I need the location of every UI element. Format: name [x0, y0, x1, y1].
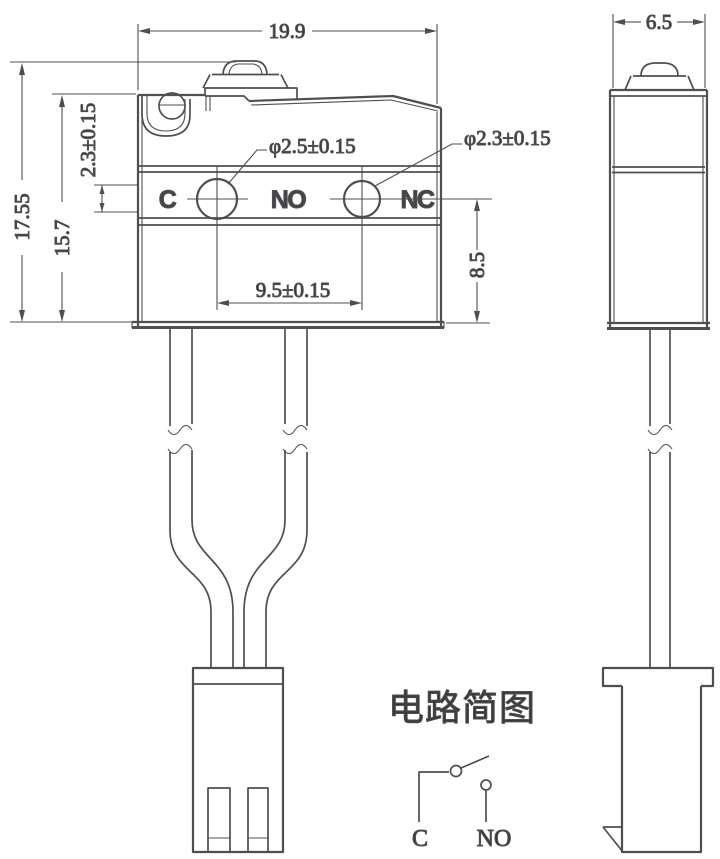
circuit-contact-no: [481, 780, 491, 790]
leader-text-hole2: φ2.3±0.15: [464, 126, 551, 150]
arrowhead: [350, 300, 362, 306]
side-body-outline: [607, 90, 710, 329]
side-wire: [648, 329, 672, 668]
connector-slot-1: [208, 788, 230, 852]
connector-slot-2: [248, 788, 268, 852]
dim-overall-height: 17.55: [10, 62, 236, 322]
dim-text-overall-height: 17.55: [10, 193, 34, 240]
dim-hole-spacing: 9.5±0.15: [217, 278, 362, 306]
side-connector: [603, 668, 713, 852]
terminal-holes: [187, 166, 492, 310]
arrowhead: [693, 19, 705, 25]
mounting-hole: [159, 93, 186, 119]
side-view: [603, 63, 713, 852]
arrowhead: [19, 310, 25, 322]
arrowhead: [425, 28, 437, 34]
dim-text-hole-offset: 2.3±0.15: [76, 103, 100, 178]
arrowhead: [613, 19, 625, 25]
dim-text-overall-width: 19.9: [269, 19, 306, 43]
front-wires: [168, 328, 307, 668]
arrowhead: [217, 300, 229, 306]
terminal-label-no: NO: [271, 186, 307, 214]
terminal-label-c: C: [159, 186, 177, 214]
terminal-label-nc: NC: [400, 186, 435, 214]
circuit-switch-arm: [461, 756, 489, 768]
leader-hole1-diameter: φ2.5±0.15: [228, 134, 356, 184]
front-connector: [193, 668, 283, 852]
dim-hole-offset: 2.3±0.15: [76, 103, 137, 212]
circuit-common-lead: [419, 772, 449, 822]
circuit-title: 电路简图: [388, 688, 536, 728]
front-view: C NO NC: [132, 61, 492, 852]
arrowhead: [100, 203, 105, 212]
circuit-label-no: NO: [477, 826, 512, 852]
dim-text-body-height: 15.7: [50, 220, 74, 257]
dim-text-hole-spacing: 9.5±0.15: [256, 278, 331, 302]
circuit-label-c: C: [412, 826, 428, 852]
arrowhead: [19, 63, 25, 75]
arrowhead: [474, 199, 480, 211]
arrowhead: [59, 310, 65, 322]
leader-hole2-diameter: φ2.3±0.15: [375, 126, 551, 186]
side-plunger-button: [625, 63, 694, 90]
arrowhead: [474, 311, 480, 323]
arrowhead: [138, 28, 150, 34]
dim-text-side-width: 6.5: [646, 10, 672, 34]
circuit-contact-c: [451, 766, 462, 777]
dim-text-terminal-to-bottom: 8.5: [465, 252, 489, 278]
bracket-cutout: [142, 96, 190, 136]
micro-switch-drawing: C NO NC: [0, 0, 720, 859]
plunger-button: [203, 61, 288, 88]
leader-text-hole1: φ2.5±0.15: [269, 134, 356, 158]
circuit-diagram: 电路简图 C NO: [388, 688, 536, 852]
technical-drawing-page: C NO NC: [0, 0, 720, 859]
dim-terminal-to-bottom: 8.5: [446, 199, 490, 323]
arrowhead: [100, 185, 105, 194]
arrowhead: [59, 95, 65, 107]
